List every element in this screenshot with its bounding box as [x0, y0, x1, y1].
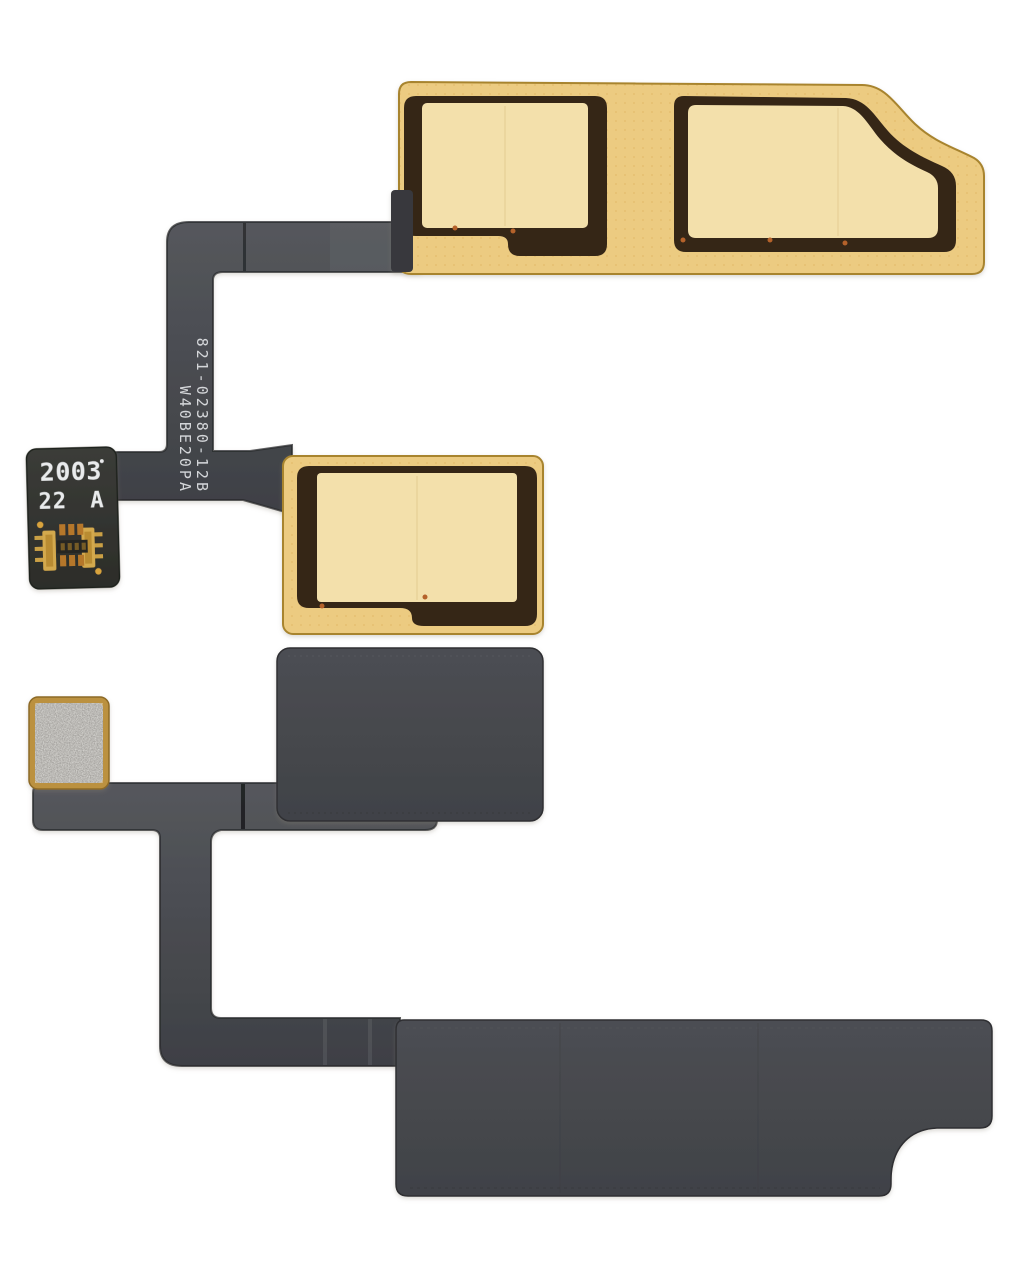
label-year-text: 2003	[39, 456, 102, 487]
middle-stiffener-pad	[277, 648, 543, 821]
top-antenna-board	[391, 82, 984, 274]
connector-rail-left-shade	[45, 535, 53, 567]
middle-stiffener-body	[277, 648, 543, 821]
ribbon-fold-seam-1	[323, 1019, 327, 1065]
product-photo: 821-02380-12B W40BE20PA	[0, 0, 1024, 1280]
bottom-stiffener-body	[396, 1020, 992, 1196]
ribbon-crease-dark	[241, 784, 245, 829]
middle-antenna-pad	[283, 456, 543, 634]
label-rev-text: 22 A	[38, 488, 105, 515]
grounding-pad	[29, 697, 109, 789]
top-board-connector-tab	[391, 190, 413, 272]
grounding-pad-foam-grain	[35, 703, 103, 783]
ribbon-crease	[243, 223, 246, 271]
component-label-pad: 2003 • 22 A	[26, 447, 120, 589]
bottom-stiffener-pad	[396, 1020, 992, 1196]
label-dot: •	[98, 455, 105, 468]
ribbon-fold-seam-2	[368, 1019, 372, 1065]
part-number-text: 821-02380-12B	[193, 338, 211, 494]
lower-ribbon-trace	[33, 783, 437, 1066]
lot-code-text: W40BE20PA	[176, 386, 194, 494]
flex-cable-illustration: 821-02380-12B W40BE20PA	[0, 0, 1024, 1280]
lower-ribbon-path	[33, 783, 437, 1066]
